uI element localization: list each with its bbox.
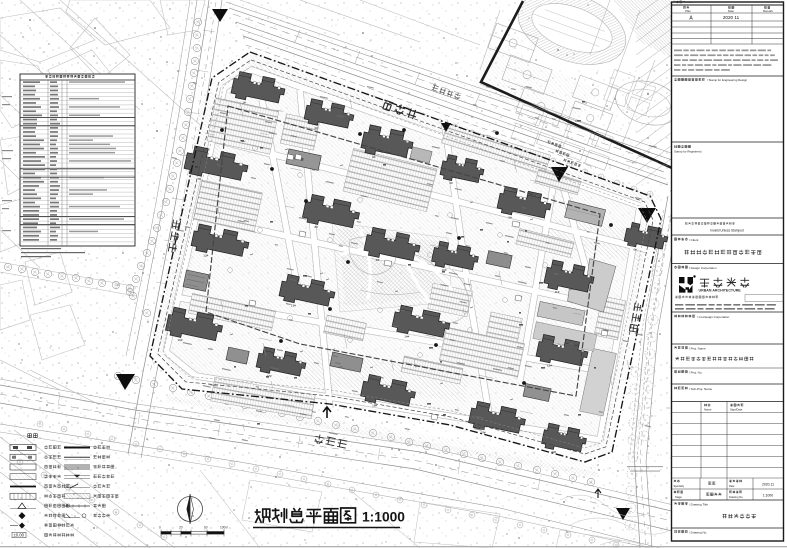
svg-text:5#: 5# — [508, 216, 512, 220]
svg-text:13#: 13# — [291, 304, 296, 308]
svg-text:/ Drawing No.: / Drawing No. — [689, 531, 707, 535]
svg-text:±0.00: ±0.00 — [14, 533, 25, 538]
svg-text:/ Proj. Name: / Proj. Name — [689, 347, 706, 351]
svg-text:20: 20 — [179, 526, 183, 530]
svg-text:Invalid Unless Stamped: Invalid Unless Stamped — [710, 229, 744, 233]
svg-text:6#: 6# — [633, 248, 637, 252]
svg-text:Plan: Plan — [685, 9, 691, 13]
svg-text:3#: 3# — [372, 155, 376, 159]
svg-text:Specialty: Specialty — [674, 484, 685, 488]
svg-text:/ Sub-Proj. Name: / Sub-Proj. Name — [689, 387, 712, 391]
svg-text:1#: 1# — [242, 101, 246, 105]
svg-text:Date: Date — [728, 9, 734, 13]
svg-text:Remark: Remark — [763, 9, 773, 13]
svg-text:2#: 2# — [315, 126, 319, 130]
svg-text:4#: 4# — [449, 181, 453, 185]
svg-text:60: 60 — [204, 526, 208, 530]
svg-text:7#: 7# — [197, 177, 201, 181]
svg-text:/ Stamp for Engineering Design: / Stamp for Engineering Design — [707, 78, 748, 82]
svg-text:12#: 12# — [203, 254, 208, 258]
svg-text:/ Client: / Client — [689, 238, 699, 242]
svg-text:/ Co-Design Corporation: / Co-Design Corporation — [697, 315, 730, 319]
svg-text:15#: 15# — [547, 364, 552, 368]
svg-text:1:1000: 1:1000 — [763, 494, 773, 498]
svg-text:Date: Date — [729, 484, 735, 488]
svg-text:Name: Name — [704, 408, 712, 412]
svg-text:16#: 16# — [178, 338, 183, 342]
svg-text:8#: 8# — [315, 225, 319, 229]
svg-text:9#: 9# — [376, 258, 380, 262]
svg-text:Stamp for Registered: Stamp for Registered — [674, 150, 702, 154]
svg-text:0: 0 — [159, 526, 161, 530]
svg-text:Drawing No.: Drawing No. — [729, 495, 744, 499]
svg-text:2020 11: 2020 11 — [723, 15, 740, 20]
svg-text:/ Design Corporation: / Design Corporation — [689, 266, 717, 270]
svg-text:/ Drawing Title: / Drawing Title — [689, 503, 708, 507]
svg-text:Stage: Stage — [675, 495, 682, 499]
svg-text:/ Proj. No.: / Proj. No. — [689, 371, 703, 375]
svg-text:1:1000: 1:1000 — [362, 510, 405, 525]
svg-text:100m: 100m — [220, 526, 228, 530]
svg-text:11#: 11# — [555, 290, 560, 294]
svg-text:/ Revision: / Revision — [682, 0, 694, 4]
svg-text:14#: 14# — [404, 335, 409, 339]
svg-text:2020.11: 2020.11 — [762, 483, 774, 487]
svg-text:Sign/Date: Sign/Date — [730, 408, 743, 412]
svg-text:URBAN ARCHITECTURE: URBAN ARCHITECTURE — [699, 289, 742, 293]
